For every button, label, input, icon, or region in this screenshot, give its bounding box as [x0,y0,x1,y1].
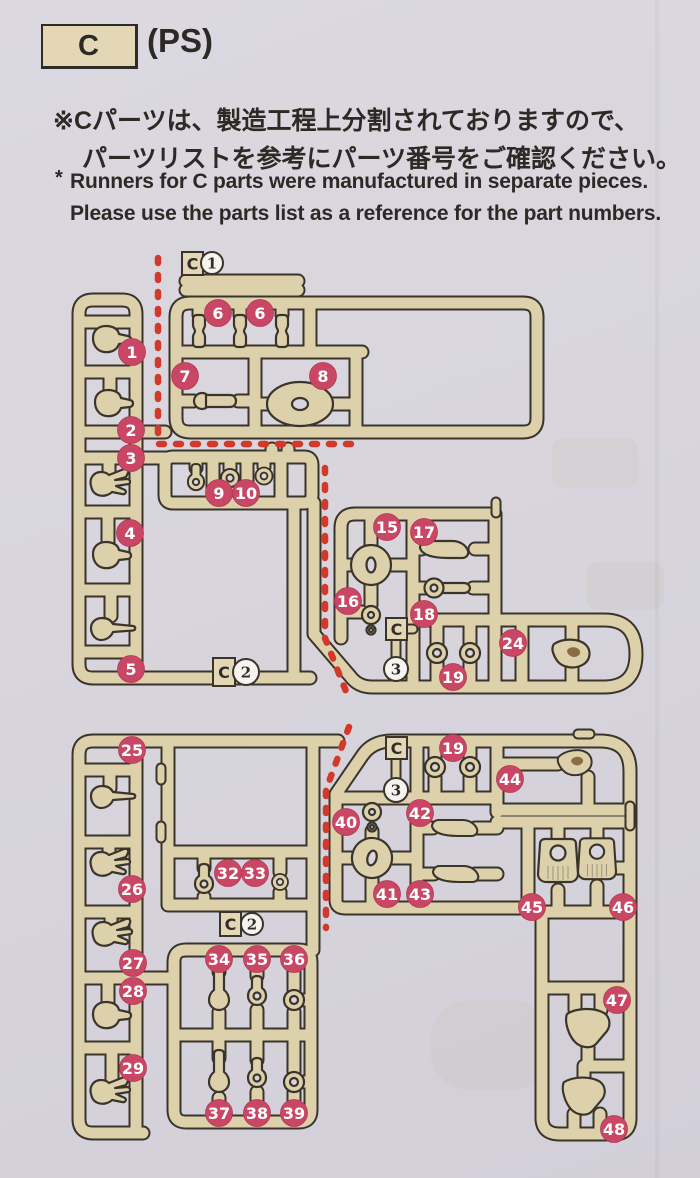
part-callout-24: 24 [500,630,527,657]
part-callout-26: 26 [119,876,146,903]
instruction-manual-page: C (PS) ※Cパーツは、製造工程上分割されておりますので、 パーツリストを参… [0,0,700,1178]
part-callout-9: 9 [206,480,233,507]
part-callout-4: 4 [117,520,144,547]
part-callout-15: 15 [374,514,401,541]
svg-text:25: 25 [121,741,143,760]
svg-text:C: C [187,255,199,274]
svg-text:2: 2 [125,421,136,440]
svg-text:C: C [391,739,403,758]
svg-text:46: 46 [612,898,634,917]
part-callout-38: 38 [244,1100,271,1127]
svg-text:34: 34 [208,950,230,969]
svg-text:32: 32 [217,864,239,883]
part-callout-6: 6 [205,300,232,327]
part-callouts: C1C2C3C2C3123456678910151716182419252627… [117,252,637,1143]
part-callout-48: 48 [601,1116,628,1143]
svg-text:39: 39 [283,1104,305,1123]
svg-text:2: 2 [241,663,251,681]
svg-text:3: 3 [125,449,136,468]
svg-text:10: 10 [235,484,257,503]
part-callout-16: 16 [335,588,362,615]
svg-text:38: 38 [246,1104,268,1123]
svg-text:C: C [225,915,237,934]
svg-text:43: 43 [409,885,431,904]
svg-text:18: 18 [413,605,435,624]
part-callout-41: 41 [374,881,401,908]
part-callout-46: 46 [610,894,637,921]
svg-text:19: 19 [442,668,464,687]
part-callout-2: 2 [118,417,145,444]
part-callout-37: 37 [206,1100,233,1127]
svg-text:42: 42 [409,804,431,823]
svg-text:9: 9 [213,484,224,503]
svg-text:44: 44 [499,770,521,789]
part-callout-1: 1 [119,339,146,366]
part-callout-32: 32 [215,860,242,887]
svg-text:28: 28 [122,982,144,1001]
part-callout-3: 3 [118,445,145,472]
svg-text:26: 26 [121,880,143,899]
part-callout-19: 19 [440,664,467,691]
part-callout-36: 36 [281,946,308,973]
svg-text:24: 24 [502,634,524,653]
part-callout-44: 44 [497,766,524,793]
part-callout-17: 17 [411,519,438,546]
part-callout-18: 18 [411,601,438,628]
runner-tag-C2: C2 [213,658,259,686]
part-callout-39: 39 [281,1100,308,1127]
svg-text:4: 4 [124,524,135,543]
svg-text:19: 19 [442,739,464,758]
svg-text:3: 3 [391,781,401,799]
svg-text:16: 16 [337,592,359,611]
svg-text:6: 6 [212,304,223,323]
svg-text:40: 40 [335,813,357,832]
part-callout-8: 8 [310,363,337,390]
svg-text:35: 35 [246,950,268,969]
part-callout-27: 27 [120,950,147,977]
svg-text:1: 1 [207,254,217,272]
svg-text:7: 7 [179,367,190,386]
part-callout-43: 43 [407,881,434,908]
svg-text:29: 29 [122,1059,144,1078]
runner-diagram: C1C2C3C2C3123456678910151716182419252627… [0,0,700,1178]
svg-text:45: 45 [521,898,543,917]
part-callout-5: 5 [118,656,145,683]
part-callout-29: 29 [120,1055,147,1082]
runner-tag-C1: C1 [182,252,223,275]
sprue-bars [79,281,636,1134]
svg-text:6: 6 [254,304,265,323]
svg-text:48: 48 [603,1120,625,1139]
part-callout-45: 45 [519,894,546,921]
svg-text:17: 17 [413,523,435,542]
part-callout-28: 28 [120,978,147,1005]
svg-text:C: C [218,663,230,682]
runner-tag-C2: C2 [220,912,263,936]
part-callout-10: 10 [233,480,260,507]
svg-text:37: 37 [208,1104,230,1123]
part-callout-6: 6 [247,300,274,327]
svg-text:41: 41 [376,885,398,904]
svg-text:47: 47 [606,991,628,1010]
svg-text:C: C [391,620,403,639]
part-callout-40: 40 [333,809,360,836]
part-callout-7: 7 [172,363,199,390]
part-callout-34: 34 [206,946,233,973]
page-fold-shadow [655,0,659,1178]
part-callout-19: 19 [440,735,467,762]
svg-text:8: 8 [317,367,328,386]
svg-text:36: 36 [283,950,305,969]
part-callout-47: 47 [604,987,631,1014]
svg-text:1: 1 [126,343,137,362]
svg-text:5: 5 [125,660,136,679]
part-callout-33: 33 [242,860,269,887]
part-callout-35: 35 [244,946,271,973]
svg-text:27: 27 [122,954,144,973]
svg-text:33: 33 [244,864,266,883]
svg-text:3: 3 [391,660,401,678]
svg-text:2: 2 [247,915,257,933]
svg-text:15: 15 [376,518,398,537]
part-callout-25: 25 [119,737,146,764]
part-callout-42: 42 [407,800,434,827]
